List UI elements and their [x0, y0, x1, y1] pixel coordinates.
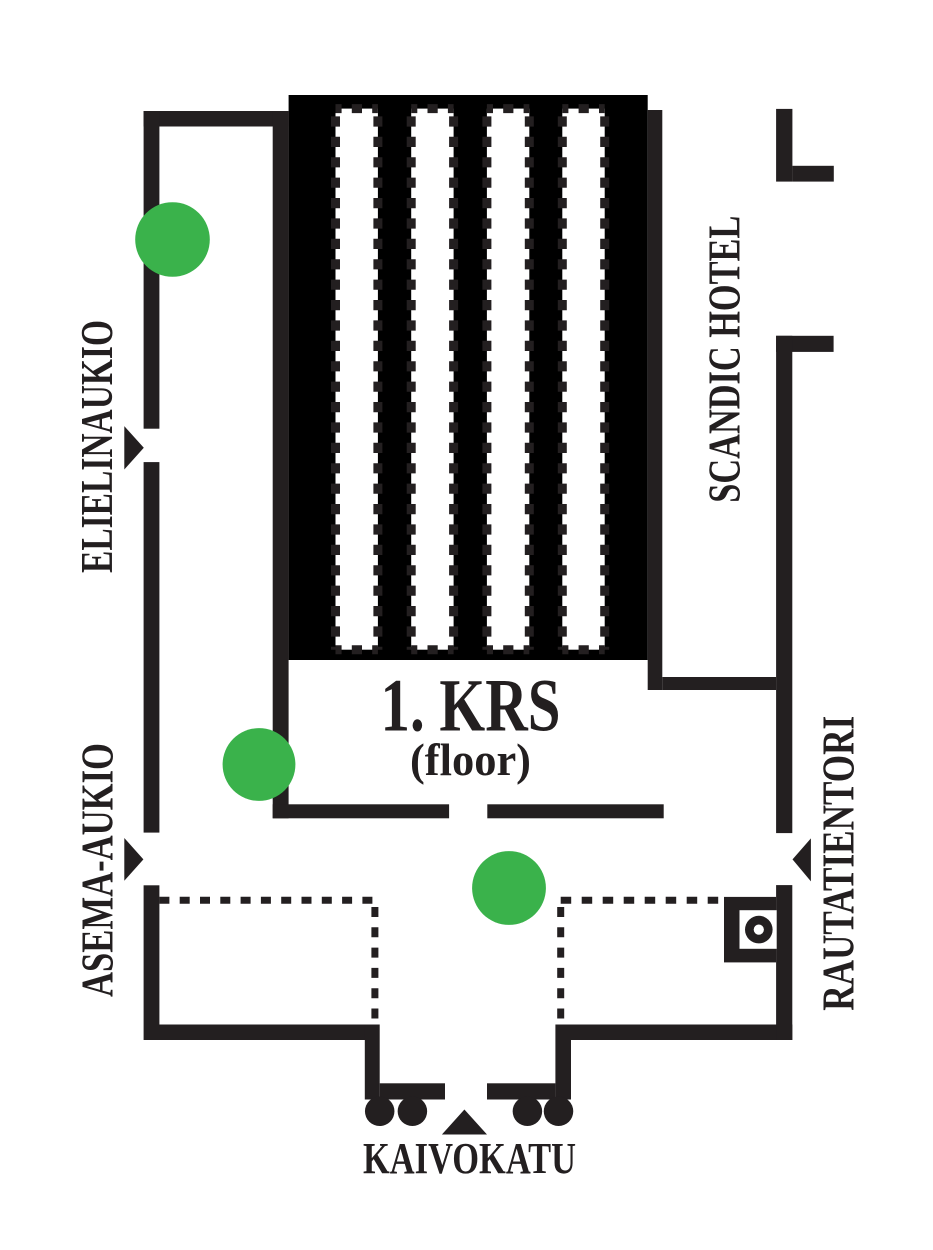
svg-text:ELIELINAUKIO: ELIELINAUKIO — [71, 320, 122, 573]
svg-text:KAIVOKATU: KAIVOKATU — [363, 1134, 576, 1183]
svg-text:ASEMA-AUKIO: ASEMA-AUKIO — [72, 743, 123, 997]
svg-text:SCANDIC HOTEL: SCANDIC HOTEL — [699, 216, 750, 503]
svg-text:RAUTATIENTORI: RAUTATIENTORI — [813, 716, 864, 1011]
svg-text:(floor): (floor) — [410, 735, 531, 785]
